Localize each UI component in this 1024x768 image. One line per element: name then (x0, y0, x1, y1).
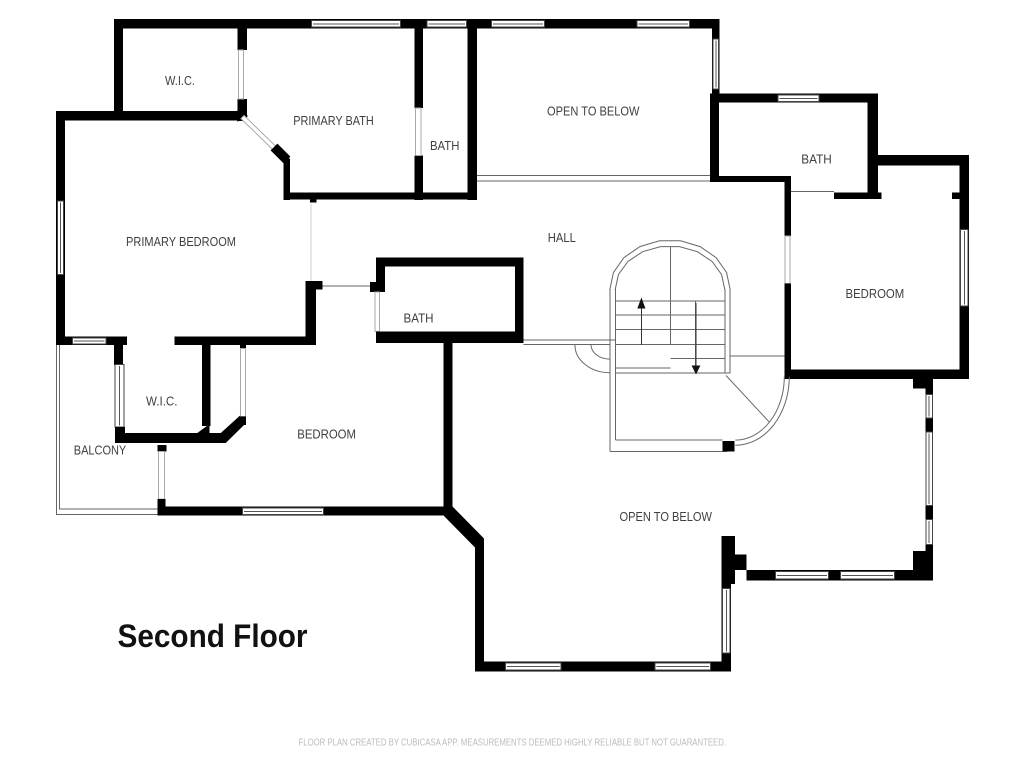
svg-text:BEDROOM: BEDROOM (846, 286, 905, 301)
svg-text:HALL: HALL (548, 230, 576, 245)
svg-text:OPEN TO BELOW: OPEN TO BELOW (547, 103, 640, 118)
svg-text:PRIMARY BATH: PRIMARY BATH (293, 113, 374, 128)
svg-text:BATH: BATH (404, 311, 434, 326)
svg-text:BATH: BATH (430, 138, 459, 153)
svg-text:Second Floor: Second Floor (118, 618, 308, 654)
svg-text:W.I.C.: W.I.C. (165, 73, 195, 88)
svg-text:BALCONY: BALCONY (74, 443, 127, 458)
svg-text:W.I.C.: W.I.C. (146, 394, 178, 409)
svg-text:BATH: BATH (801, 151, 832, 166)
svg-text:BEDROOM: BEDROOM (297, 427, 356, 442)
svg-text:FLOOR PLAN CREATED BY CUBICASA: FLOOR PLAN CREATED BY CUBICASA APP. MEAS… (299, 738, 727, 749)
svg-text:PRIMARY BEDROOM: PRIMARY BEDROOM (126, 234, 236, 249)
svg-text:OPEN TO BELOW: OPEN TO BELOW (620, 509, 713, 524)
